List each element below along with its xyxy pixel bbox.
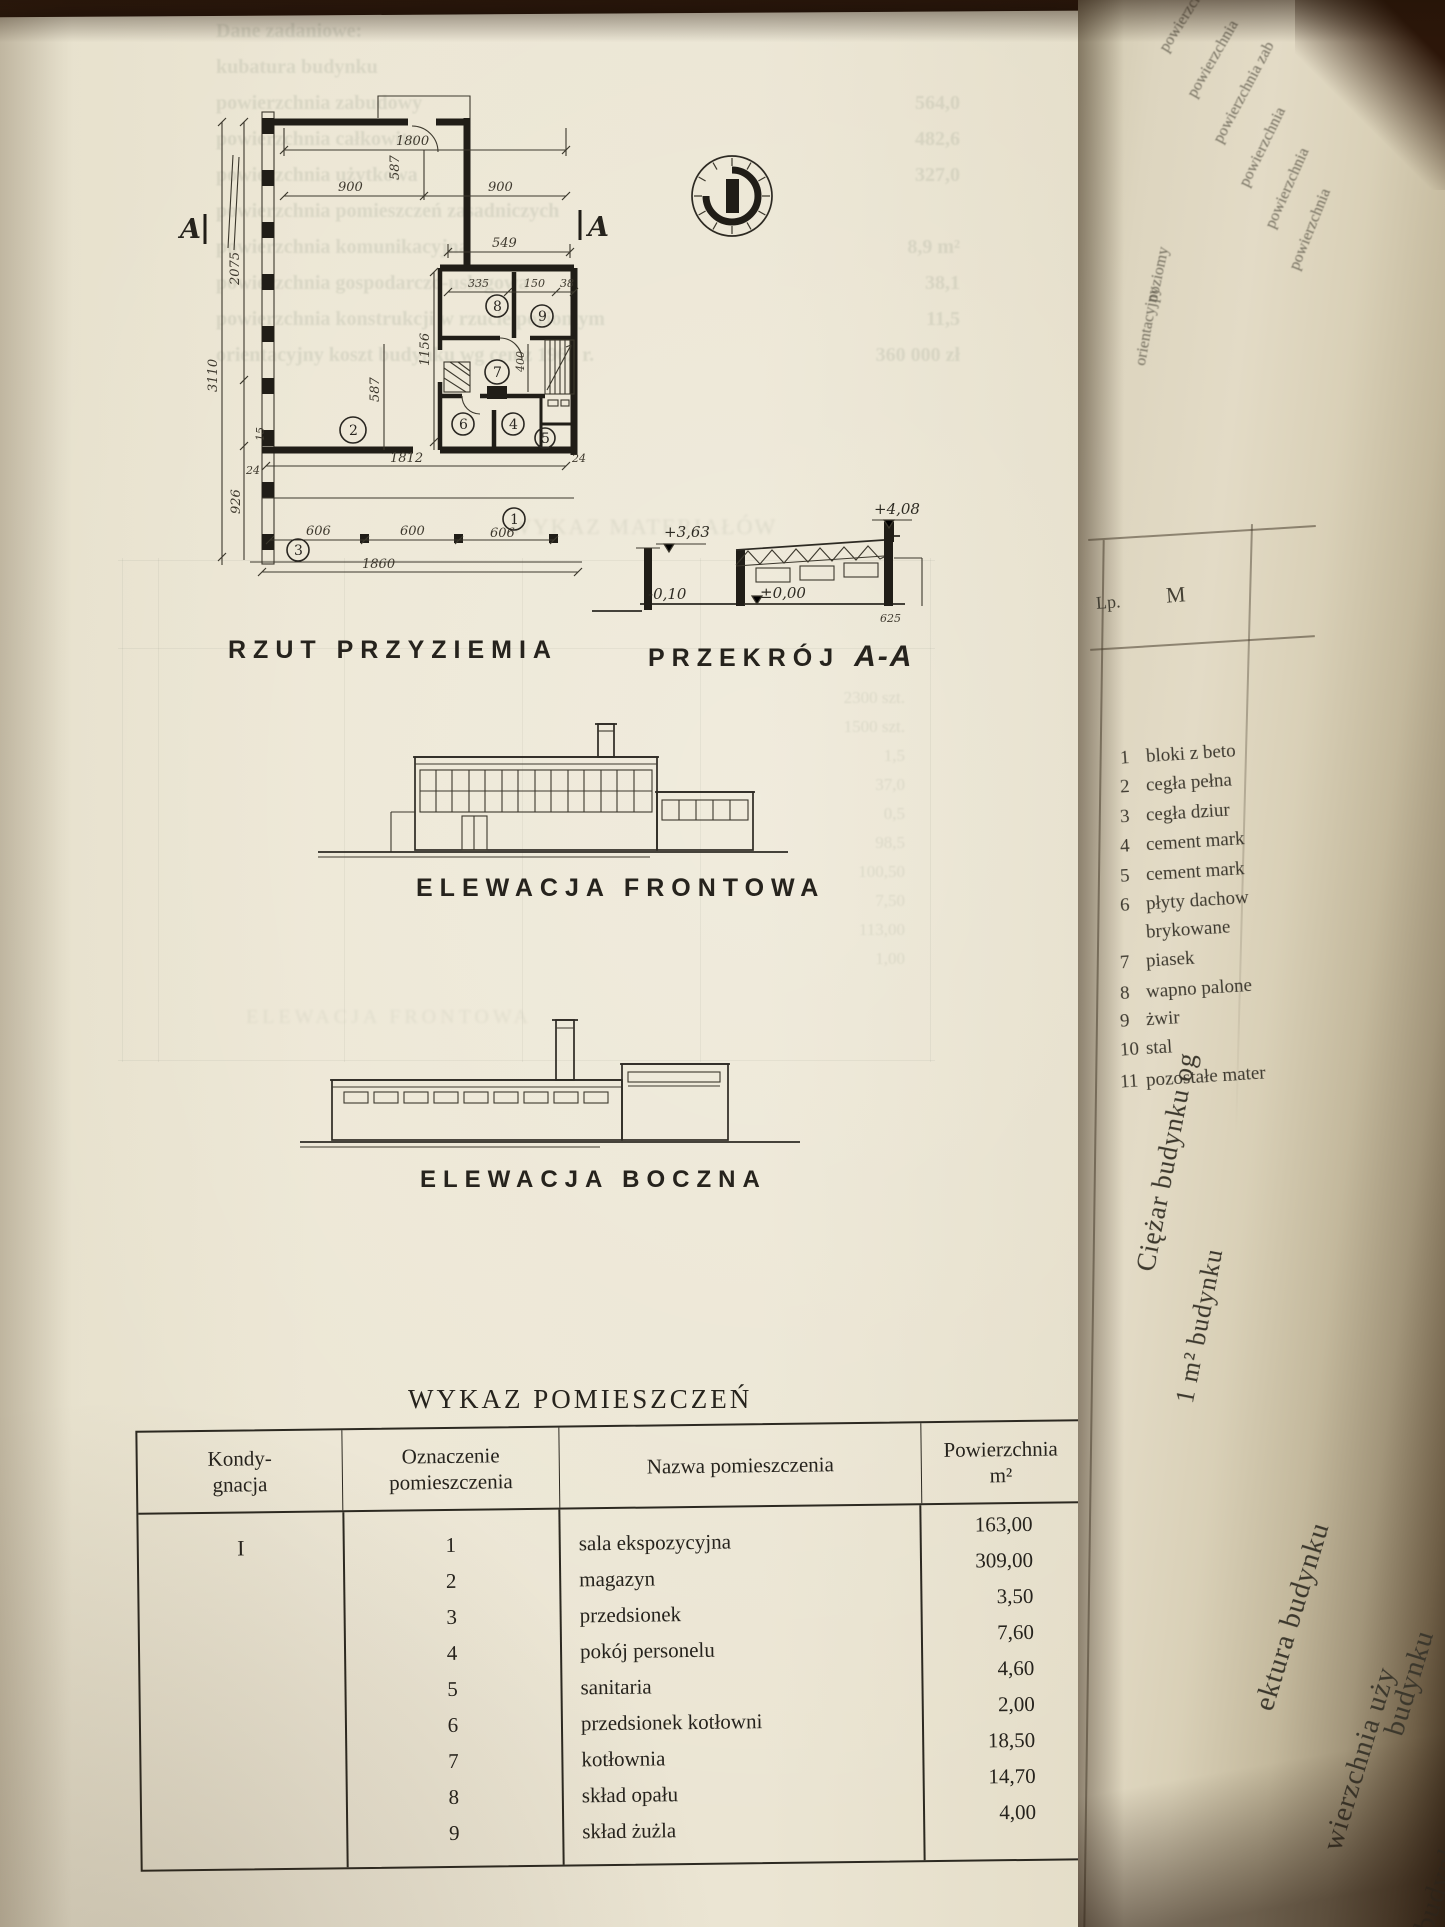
next-page-edge: Lp. M powierzchniapowierzchniapowierzchn… — [1078, 0, 1445, 1927]
next-page-header-underline — [1090, 635, 1315, 651]
svg-text:9: 9 — [538, 309, 547, 325]
section-drawing: +3,63 +4,08 ±0,00 -0,10 625 — [592, 500, 922, 625]
svg-text:600: 600 — [400, 524, 425, 539]
compass-emblem — [692, 156, 772, 236]
room-name-cell: przedsionek kotłowni — [561, 1707, 922, 1736]
svg-text:1156: 1156 — [418, 333, 433, 366]
room-number-cell: 8 — [346, 1783, 562, 1811]
svg-text:-0,10: -0,10 — [648, 585, 687, 603]
svg-text:7: 7 — [493, 365, 502, 381]
svg-text:1: 1 — [510, 512, 519, 528]
svg-text:400: 400 — [514, 351, 527, 373]
room-schedule-heading: WYKAZ POMIESZCZEŃ — [408, 1384, 752, 1415]
svg-text:900: 900 — [488, 180, 513, 195]
svg-text:926: 926 — [229, 489, 244, 514]
section-marker-a-left: A — [180, 214, 201, 245]
header-nazwa: Nazwa pomieszczenia — [559, 1423, 922, 1507]
side-elevation-drawing — [300, 1020, 800, 1147]
curved-text-line: orientacyjny — [1132, 285, 1164, 367]
photographed-book-page: Dane zadaniowe: kubatura budynku powierz… — [0, 0, 1445, 1927]
room-number-cell: 7 — [345, 1747, 561, 1775]
room-number-cell: 9 — [346, 1819, 562, 1847]
room-name-cell: sanitaria — [560, 1671, 921, 1700]
material-list-item: 8wapno palone — [1119, 975, 1252, 1005]
svg-text:606: 606 — [490, 526, 515, 541]
section-marker-a-right: A — [588, 212, 609, 243]
svg-text:±0,00: ±0,00 — [760, 584, 806, 602]
room-number-cell: 5 — [344, 1675, 560, 1703]
next-page-table-frame-line — [1083, 540, 1104, 1927]
svg-text:625: 625 — [880, 612, 901, 625]
next-page-header-material: M — [1165, 581, 1186, 608]
table-header-row: Kondy-gnacja Oznaczeniepomieszczenia Naz… — [137, 1421, 1080, 1515]
svg-text:15: 15 — [254, 427, 267, 441]
front-elevation-drawing — [318, 724, 788, 857]
svg-text:+4,08: +4,08 — [874, 500, 920, 518]
floor-plan-title: RZUT PRZYZIEMIA — [228, 636, 558, 665]
next-page-table-top-line — [1088, 525, 1316, 541]
svg-text:1812: 1812 — [390, 451, 423, 466]
svg-text:587: 587 — [388, 154, 403, 180]
svg-text:335: 335 — [468, 277, 489, 290]
rotated-edge-line: ektura budynku — [1248, 1518, 1337, 1714]
svg-text:3: 3 — [294, 543, 303, 559]
material-list-item: 1bloki z beto — [1119, 740, 1236, 769]
room-name-cell: skład żużla — [562, 1815, 923, 1844]
material-list-item: 9żwir — [1119, 1007, 1180, 1033]
header-powierzchnia: Powierzchniam² — [921, 1421, 1080, 1503]
plan-dimensions: 1800 900 900 587 549 335 150 38 1156 400 — [206, 118, 586, 576]
header-kondygnacja: Kondy-gnacja — [137, 1430, 343, 1512]
stair — [545, 340, 574, 394]
material-list-item: 6płyty dachow — [1119, 887, 1249, 917]
curved-text-line: powierzchnia — [1184, 17, 1243, 101]
material-list-item: 7piasek — [1119, 947, 1195, 974]
svg-text:549: 549 — [492, 236, 517, 251]
room-number-cell: 6 — [345, 1711, 561, 1739]
svg-text:6: 6 — [459, 417, 468, 433]
storey-label: I — [139, 1534, 343, 1562]
svg-text:5: 5 — [541, 431, 550, 447]
room-number-cell: 1 — [343, 1531, 559, 1559]
section-title: PRZEKRÓJ A-A — [648, 640, 913, 674]
material-list-item: 2cegła pełna — [1119, 770, 1232, 799]
svg-text:1800: 1800 — [396, 134, 429, 149]
svg-text:3110: 3110 — [206, 359, 221, 392]
svg-text:8: 8 — [493, 299, 502, 315]
rotated-edge-line: budynku uży — [1408, 1772, 1445, 1927]
svg-text:2075: 2075 — [228, 252, 243, 286]
svg-text:+3,63: +3,63 — [664, 523, 710, 541]
room-name-cell: skład opału — [562, 1779, 923, 1808]
room-schedule-table: Kondy-gnacja Oznaczeniepomieszczenia Naz… — [135, 1419, 1086, 1872]
next-page-header-lp: Lp. — [1095, 591, 1121, 614]
rotated-edge-line: 1 m² budynku — [1170, 1246, 1229, 1406]
svg-text:606: 606 — [306, 524, 331, 539]
front-elevation-title: ELEWACJA FRONTOWA — [416, 874, 825, 903]
room-number-cell: 3 — [343, 1603, 559, 1631]
hatched-wall — [262, 118, 274, 550]
photo-corner-shadow — [1295, 0, 1445, 190]
rotated-edge-line: budynku — [1378, 1626, 1441, 1739]
room-number-cell: 4 — [344, 1639, 560, 1667]
table-body: I 1 sala ekspozycyjna 163,00 2 magazyn 3… — [138, 1503, 1084, 1869]
rotated-edge-line: wierzchnia uży — [1316, 1663, 1403, 1855]
svg-text:150: 150 — [524, 277, 545, 290]
material-list-item: 3cegła dziur — [1119, 799, 1230, 828]
svg-text:587: 587 — [368, 376, 383, 402]
side-elevation-title: ELEWACJA BOCZNA — [420, 1166, 767, 1194]
material-list-item: 4cement mark — [1119, 828, 1245, 858]
svg-text:24: 24 — [571, 452, 586, 465]
header-oznaczenie: Oznaczeniepomieszczenia — [342, 1428, 560, 1511]
svg-text:900: 900 — [338, 180, 363, 195]
svg-text:24: 24 — [245, 464, 260, 477]
floor-plan-drawing: 1800 900 900 587 549 335 150 38 1156 400 — [205, 96, 772, 576]
section-title-aa: A-A — [854, 640, 913, 673]
svg-text:1860: 1860 — [362, 557, 395, 572]
svg-text:38: 38 — [560, 277, 574, 290]
room-area-cell: 4,00 — [923, 1813, 1084, 1840]
curved-text-line: powierzchnia — [1156, 0, 1217, 56]
room-name-cell: przedsionek — [559, 1599, 920, 1628]
curved-text-line: powierzchnia — [1286, 186, 1335, 273]
room-name-cell: magazyn — [559, 1563, 920, 1592]
svg-text:4: 4 — [509, 417, 518, 433]
material-list-item: 5cement mark — [1119, 858, 1245, 888]
svg-text:2: 2 — [349, 423, 358, 439]
material-list-item: 10stal — [1119, 1036, 1173, 1061]
room-number-cell: 2 — [343, 1567, 559, 1595]
room-name-cell: sala ekspozycyjna — [559, 1527, 920, 1556]
room-name-cell: kotłownia — [561, 1743, 922, 1772]
material-list-item: brykowane — [1119, 917, 1231, 946]
room-name-cell: pokój personelu — [560, 1635, 921, 1664]
